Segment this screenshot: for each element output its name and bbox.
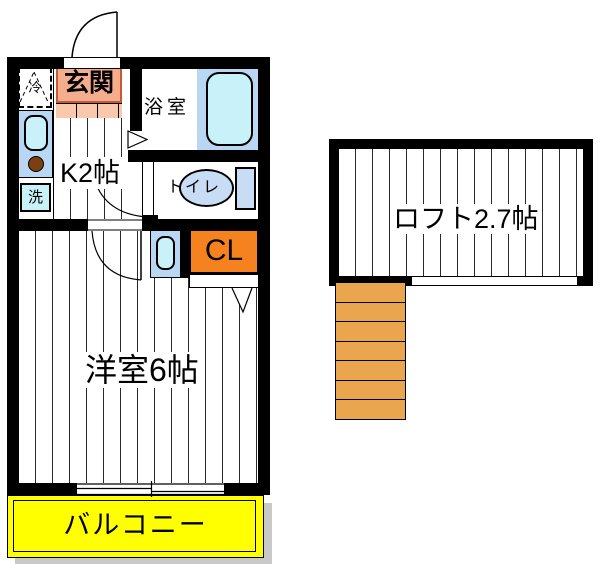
bedroom-label: 洋室6帖 [85, 354, 199, 386]
kitchen-label: K2帖 [60, 160, 120, 187]
entrance-label: 玄関 [64, 71, 114, 96]
entrance-door-icon [72, 12, 117, 57]
toilet-label: トイレ [167, 180, 221, 196]
kitchen-label-box: K2帖 [57, 157, 123, 189]
bath-door-icon [128, 131, 147, 148]
loft-label-box: ロフト2.7帖 [390, 204, 542, 234]
toilet-label-box: トイレ [167, 179, 221, 197]
fridge-label: 冷 [28, 81, 41, 94]
floor-plan: 洗 CL [0, 0, 600, 569]
bath-label-box: 浴室 [144, 95, 190, 119]
bath-label: 浴室 [144, 98, 190, 117]
bedroom-label-box: 洋室6帖 [82, 352, 202, 388]
loft-label: ロフト2.7帖 [393, 206, 539, 233]
balcony-label-box: バルコニー [7, 495, 264, 555]
entrance-label-box: 玄関 [56, 63, 122, 103]
fridge-label-box: 冷 [18, 67, 52, 108]
bedroom-door-icon [88, 220, 142, 280]
closet-door-icon [232, 288, 252, 312]
balcony-label: バルコニー [63, 512, 207, 539]
